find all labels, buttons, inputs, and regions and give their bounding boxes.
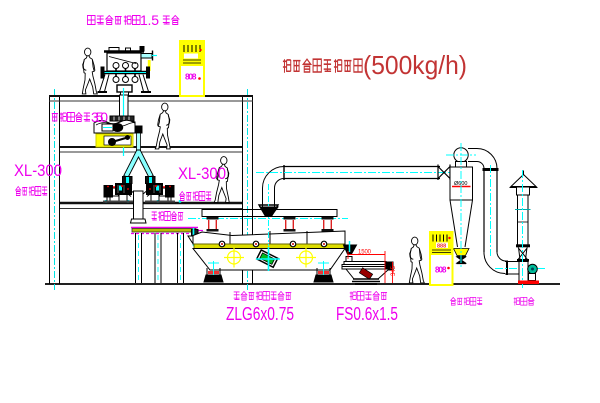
svg-text:808: 808: [435, 266, 447, 275]
svg-text:350: 350: [91, 109, 108, 125]
svg-text:FS0.6x1.5: FS0.6x1.5: [336, 304, 398, 324]
svg-text:1.5: 1.5: [140, 12, 159, 28]
svg-text:ZLG6x0.75: ZLG6x0.75: [226, 304, 294, 324]
svg-text:XL-300: XL-300: [178, 164, 226, 183]
svg-text:345: 345: [391, 265, 397, 276]
svg-text:1500: 1500: [358, 250, 372, 256]
svg-text:888: 888: [437, 244, 446, 250]
svg-text:808: 808: [185, 72, 197, 82]
svg-text:XL-300: XL-300: [14, 161, 62, 180]
svg-text:(500kg/h): (500kg/h): [363, 50, 467, 80]
